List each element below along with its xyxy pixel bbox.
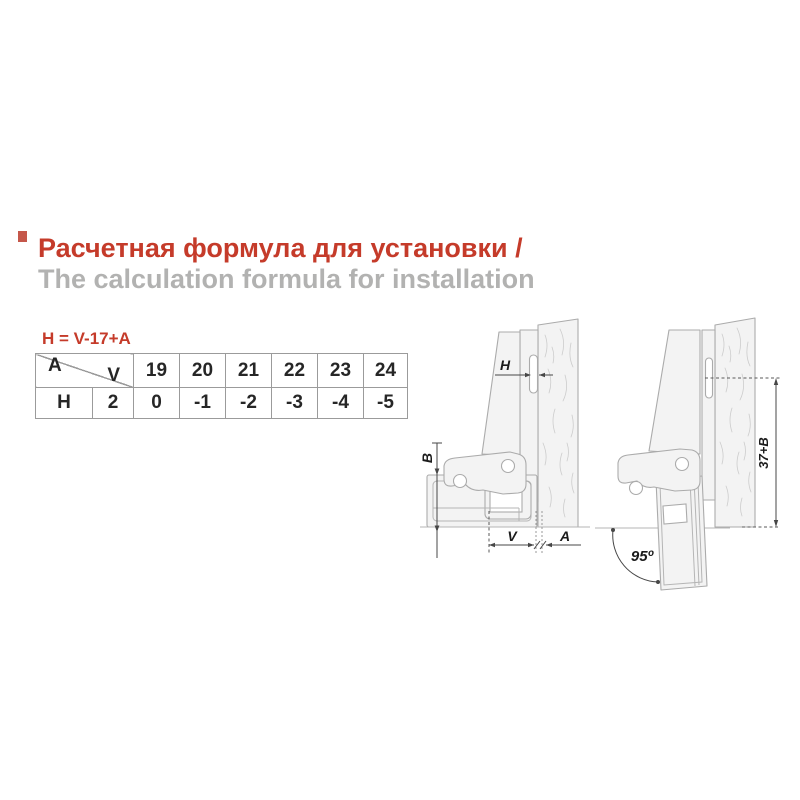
cup-pivot-hole	[454, 475, 467, 488]
h-value-cell: -1	[180, 388, 226, 419]
page-title-en: The calculation formula for installation	[38, 264, 535, 295]
v-value-cell: 19	[134, 354, 180, 388]
door-cup-cavity	[663, 504, 687, 524]
v-value-cell: 24	[364, 354, 408, 388]
row-label-cell: H	[36, 388, 93, 419]
v-value-cell: 20	[180, 354, 226, 388]
dim-label-b: B	[419, 453, 435, 463]
arm-screw-hole	[502, 460, 515, 473]
mounting-plate	[702, 330, 715, 500]
v-value-cell: 23	[318, 354, 364, 388]
arc-dot-start	[611, 528, 615, 532]
dim-arrow-bottom	[774, 520, 778, 527]
corner-label-a: A	[48, 355, 62, 377]
angle-label: 95º	[631, 548, 655, 565]
page-title-ru: Расчетная формула для установки /	[38, 233, 523, 264]
dim-arrow-b-bottom	[435, 526, 440, 533]
h-value-cell: -3	[272, 388, 318, 419]
dim-arrow-v-left	[489, 543, 495, 547]
dim-label-a: A	[559, 528, 570, 544]
h-value-cell: -2	[226, 388, 272, 419]
red-mark	[18, 231, 27, 242]
formula-text: H = V-17+A	[42, 329, 131, 349]
h-value-cell: 2	[93, 388, 134, 419]
calculation-table: A V 19 20 21 22 23 24 H 2 0 -1 -2 -3 -4 …	[35, 353, 408, 419]
door-panel	[538, 319, 578, 527]
hinge-closed-diagram: H B V A	[415, 315, 595, 580]
h-value-cell: 0	[134, 388, 180, 419]
v-value-cell: 21	[226, 354, 272, 388]
hinge-open-diagram: 95º 37+B	[590, 308, 790, 600]
cup-pivot-hole	[630, 482, 643, 495]
door-panel	[715, 318, 755, 527]
dim-label-h: H	[500, 357, 511, 373]
dim-label-v: V	[507, 528, 518, 544]
hinge-arm	[482, 332, 520, 456]
hinge-arm	[649, 330, 700, 454]
h-value-cell: -4	[318, 388, 364, 419]
table-h-row: H 2 0 -1 -2 -3 -4 -5	[36, 388, 408, 419]
page: Расчетная формула для установки / The ca…	[0, 0, 800, 800]
dim-arrow-b-top	[435, 469, 440, 476]
corner-label-v: V	[107, 365, 120, 387]
arc-dot-end	[656, 580, 660, 584]
table-header-row: A V 19 20 21 22 23 24	[36, 354, 408, 388]
dim-arrow-v-right	[528, 543, 534, 547]
dim-label-height: 37+B	[756, 437, 771, 468]
dim-arrow-top	[774, 378, 778, 385]
h-value-cell: -5	[364, 388, 408, 419]
dim-arrow-a	[546, 543, 552, 547]
arm-screw-hole	[676, 458, 689, 471]
v-value-cell: 22	[272, 354, 318, 388]
plate-slot	[530, 355, 538, 393]
dim-line-a	[534, 541, 581, 549]
diagonal-header-cell: A V	[36, 354, 134, 388]
